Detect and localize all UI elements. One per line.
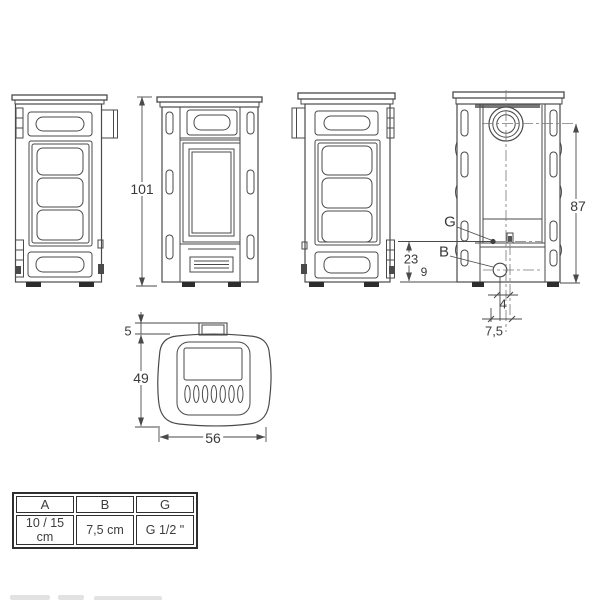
stove-rear-view	[453, 92, 564, 287]
b-connection-label: B	[439, 245, 449, 260]
foot	[472, 282, 484, 287]
foot	[26, 282, 41, 287]
stove-front-view	[157, 97, 262, 287]
spec-col-a-header: A	[16, 496, 74, 513]
spec-table-value-row: 10 / 15 cm 7,5 cm G 1/2 "	[16, 515, 194, 545]
dim-rear-edge-label: 9	[419, 266, 430, 278]
dim-b-offset-label: 4	[499, 298, 506, 311]
side-flue-stub	[102, 110, 118, 138]
side-bottom-panel	[28, 252, 92, 277]
hinge-strip	[16, 108, 23, 138]
spec-col-b-header: B	[76, 496, 134, 513]
side-flue-stub	[292, 108, 305, 138]
foot	[228, 282, 241, 287]
side-top-panel	[28, 112, 92, 136]
dim-b-spacing-label: 7,5	[485, 325, 503, 338]
stove-side-view-right	[292, 93, 395, 287]
dim-flue-stub-depth-label: 5	[124, 325, 131, 338]
dim-width-label: 56	[203, 431, 223, 445]
foot	[364, 282, 379, 287]
spec-col-g-value: G 1/2 "	[136, 515, 194, 545]
foot	[309, 282, 324, 287]
stove-top-view	[158, 323, 271, 426]
top-plate	[184, 348, 242, 380]
spec-col-a-value: 10 / 15 cm	[16, 515, 74, 545]
side-main-frame	[315, 140, 380, 245]
dim-g-height-label: 23	[402, 253, 420, 266]
spec-col-b-value: 7,5 cm	[76, 515, 134, 545]
g-connection-label: G	[444, 215, 456, 230]
cropped-footer-text-remnant	[94, 596, 162, 600]
dim-flue-height-label: 87	[568, 199, 588, 213]
g-connection-dot	[490, 239, 495, 244]
foot	[79, 282, 94, 287]
spec-table-header-row: A B G	[16, 496, 194, 513]
dim-depth-label: 49	[131, 371, 151, 385]
spec-table: A B G 10 / 15 cm 7,5 cm G 1/2 "	[12, 492, 198, 549]
stove-side-view-left	[12, 95, 118, 287]
spec-col-g-header: G	[136, 496, 194, 513]
dim-overall-height-label: 101	[128, 182, 155, 196]
foot	[182, 282, 195, 287]
technical-drawing-page: 101 87 G B 23 9 4 7,5 5 49 56 A B G 10 /…	[0, 0, 600, 600]
cropped-footer-text-remnant	[58, 595, 84, 600]
foot	[547, 282, 559, 287]
cropped-footer-text-remnant	[10, 595, 50, 600]
